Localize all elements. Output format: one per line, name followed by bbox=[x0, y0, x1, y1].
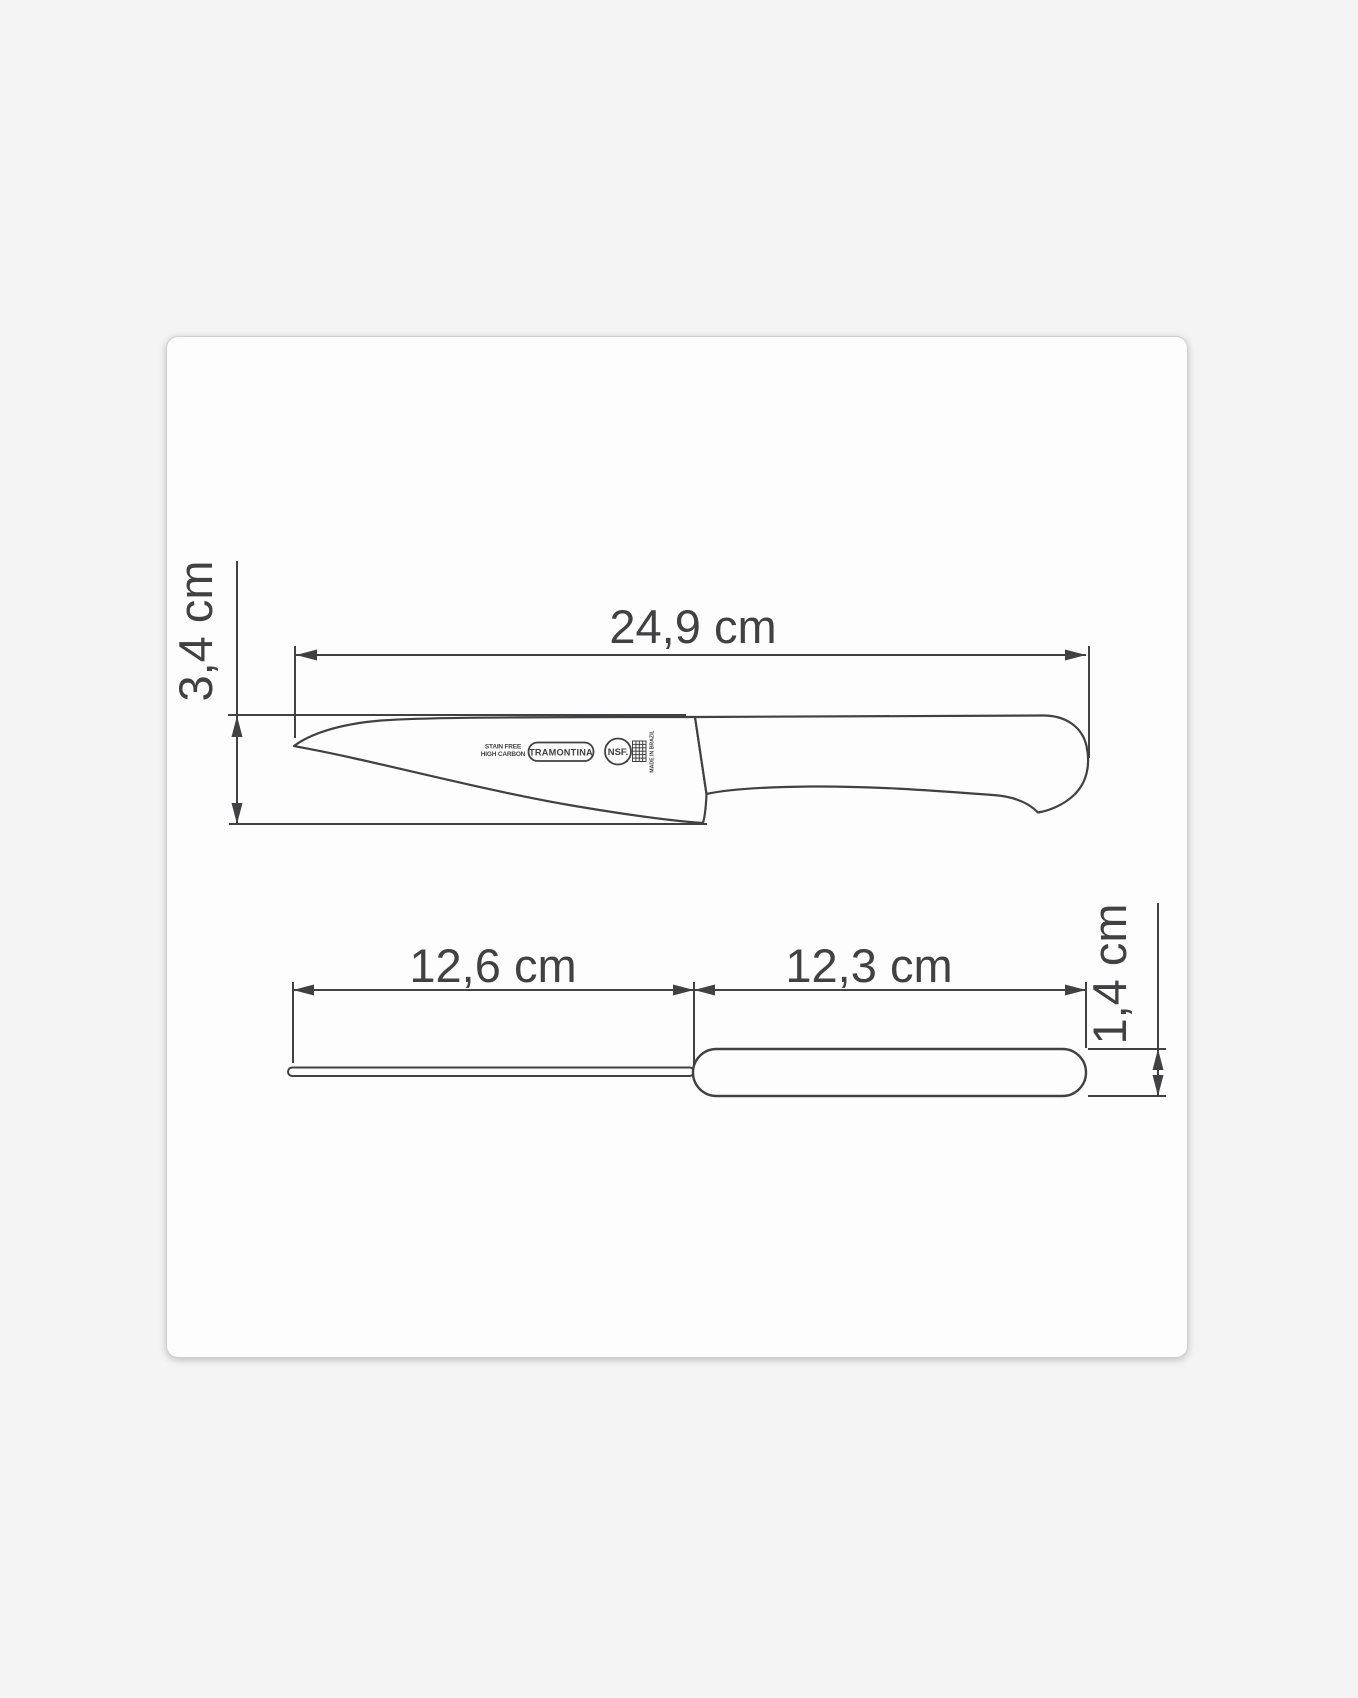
nsf-certification-text: NSF. bbox=[608, 747, 629, 758]
side-view-handle bbox=[695, 716, 1088, 813]
stamp-micro-text-line1: STAIN FREE bbox=[485, 744, 522, 751]
page-background: STAIN FREE HIGH CARBON TRAMONTINA NSF. bbox=[0, 0, 1358, 1698]
knife-dimensions-diagram: STAIN FREE HIGH CARBON TRAMONTINA NSF. bbox=[167, 337, 1189, 1359]
dimension-label-handle-length: 12,3 cm bbox=[785, 939, 952, 992]
dimension-label-blade-length: 12,6 cm bbox=[409, 939, 576, 992]
side-view-blade bbox=[294, 717, 707, 823]
dimension-label-handle-width: 1,4 cm bbox=[1083, 903, 1136, 1044]
dimension-label-blade-height: 3,4 cm bbox=[169, 560, 222, 701]
product-dimensions-card: STAIN FREE HIGH CARBON TRAMONTINA NSF. bbox=[166, 336, 1188, 1358]
top-view-knife bbox=[288, 1049, 1086, 1096]
dimension-label-total-length: 24,9 cm bbox=[609, 600, 776, 653]
brand-stamp-text: TRAMONTINA bbox=[529, 747, 593, 757]
origin-stamp-text: MADE IN BRAZIL bbox=[650, 729, 656, 772]
matrix-stamp-icon bbox=[633, 741, 647, 762]
side-view-knife: STAIN FREE HIGH CARBON TRAMONTINA NSF. bbox=[294, 716, 1088, 824]
top-view-blade-spine bbox=[288, 1068, 694, 1077]
extension-lines bbox=[228, 646, 1166, 1096]
stamp-micro-text-line2: HIGH CARBON bbox=[481, 751, 526, 758]
top-view-handle bbox=[693, 1049, 1086, 1096]
